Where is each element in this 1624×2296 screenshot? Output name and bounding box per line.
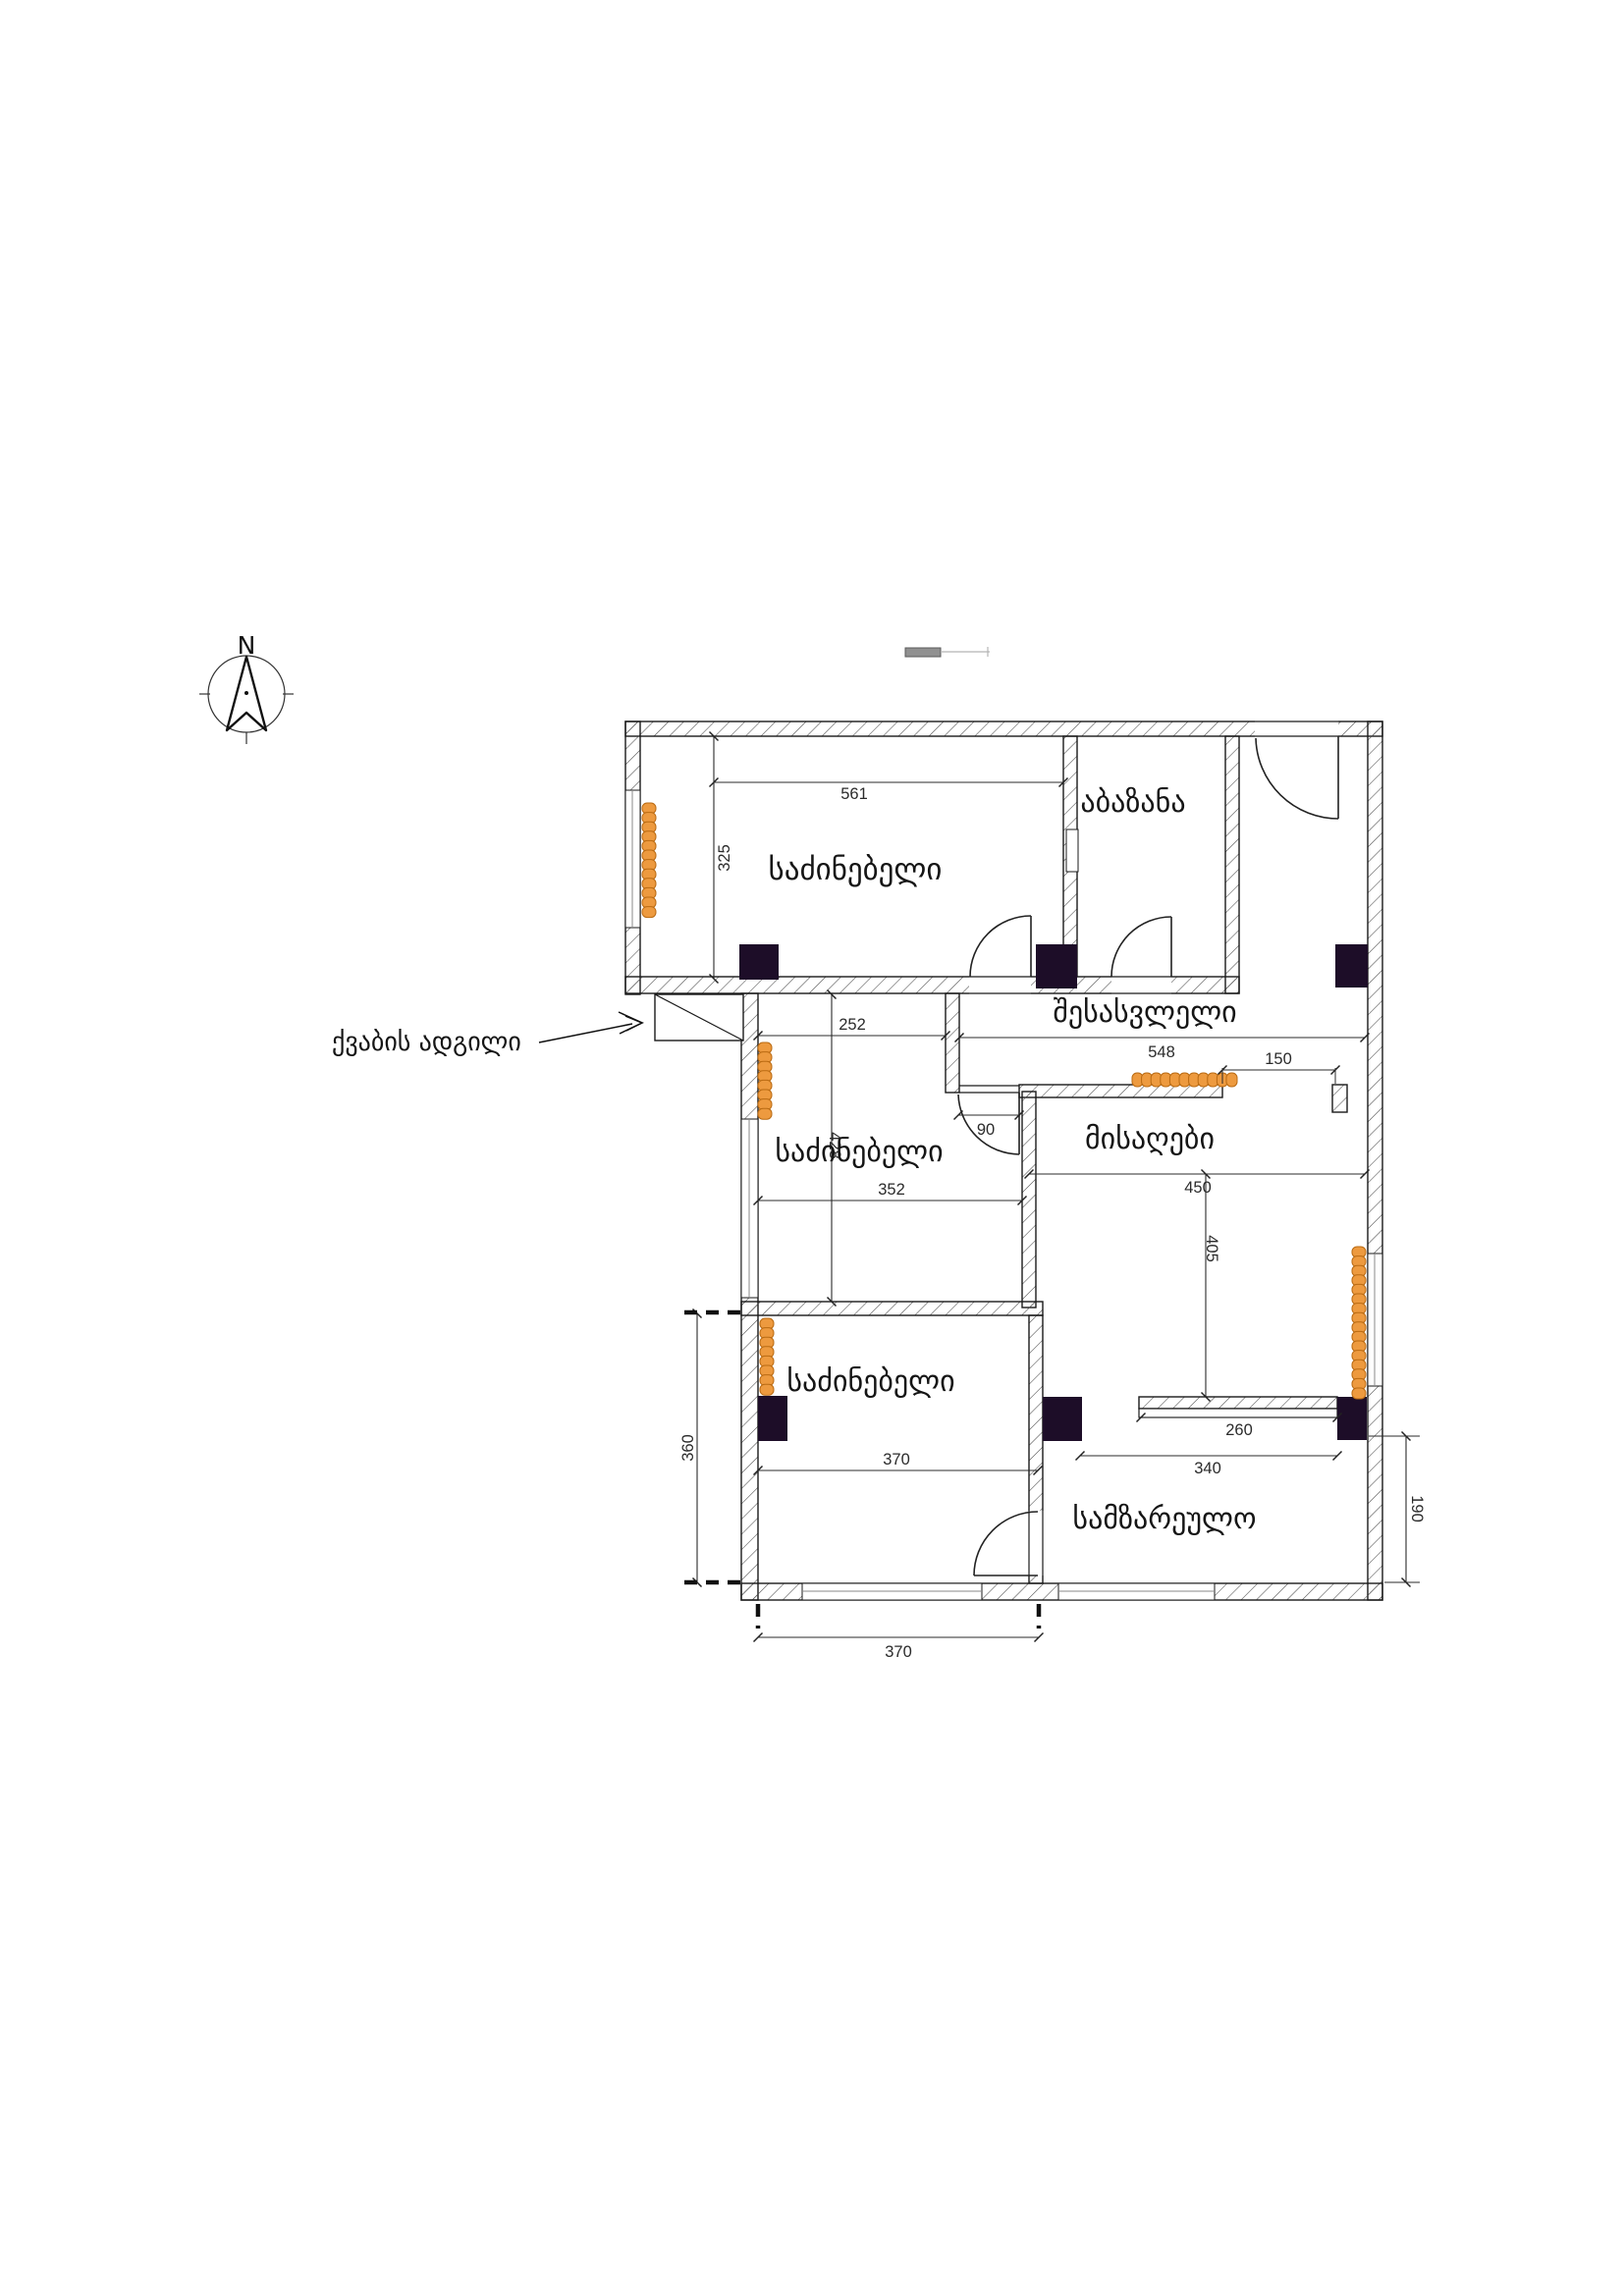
bedroom-top-door-opening [969,976,1031,994]
column [1043,1397,1082,1441]
dim-360: 360 [679,1434,697,1462]
wall-bathroom-right [1225,736,1239,993]
arrow-head-icon [619,1012,642,1034]
window-living-right [1368,1254,1382,1386]
entry-door-opening [1255,721,1338,737]
wall-hall-partition [946,993,959,1093]
dim-561: 561 [840,785,868,803]
dim-340: 340 [1194,1460,1221,1477]
north-label: N [238,631,256,660]
boiler-niche [655,994,743,1041]
room-label-living: მისაღები [1085,1122,1215,1156]
floor-plan-drawing: N [0,0,1624,2296]
room-label-bathroom: აბაზანა [1080,785,1185,820]
column [1337,1397,1367,1440]
radiator-icon [760,1318,774,1395]
radiator-icon [642,803,656,918]
arrow-head-icon [625,1016,642,1031]
dim-325: 325 [716,844,733,872]
wall-bedroom-bottom-top [741,1302,1043,1315]
room-label-bedroom-bottom: საძინებელი [786,1364,954,1399]
vent-bathroom [1066,829,1078,872]
leader-line [539,1024,632,1042]
dim-352: 352 [878,1181,905,1199]
window-bedroom-bottom [802,1583,982,1600]
windows [625,790,1382,1600]
column [739,944,779,980]
north-compass-icon: N [199,631,294,744]
column [1036,944,1077,988]
bathroom-door [1111,917,1171,977]
radiator-icon [1132,1073,1237,1087]
radiator-icon [1352,1247,1366,1399]
floor-plan-page: N [0,0,1624,2296]
column [758,1396,787,1441]
room-label-hall: შესასვლელი [1053,995,1236,1030]
room-label-bedroom-middle: საძინებელი [775,1135,943,1169]
scale-bar [905,647,990,657]
entry-door [1256,736,1338,819]
room-labels: საძინებელი აბაზანა შესასვლელი საძინებელი… [769,785,1257,1536]
walls [625,721,1382,1600]
column [1335,944,1368,988]
bathroom-door-opening [1111,976,1171,994]
wall-partial-260 [1139,1397,1337,1409]
dim-190: 190 [1408,1495,1426,1522]
bedroom-top-door [970,916,1031,977]
dimension-texts: 561 325 252 548 150 90 352 428 450 405 2… [679,785,1426,1661]
window-bedroom-top-left [625,790,640,928]
dim-370-room: 370 [883,1451,910,1468]
middle-door-opening [959,1086,1019,1093]
room-label-kitchen: სამზარეულო [1072,1502,1256,1536]
bedroom-bottom-door-opening [1027,1511,1045,1575]
window-kitchen-bottom [1058,1583,1215,1600]
boiler-area-label: ქვაბის ადგილი [332,1028,521,1057]
dim-252: 252 [839,1016,866,1034]
wall-partial-260-ledge [1139,1409,1337,1417]
dim-260: 260 [1225,1421,1253,1439]
dim-90: 90 [977,1121,995,1139]
radiator-icon [758,1042,772,1119]
dim-450: 450 [1184,1179,1212,1197]
wall-stub-150 [1332,1085,1347,1112]
wall-living-mid-partition [1022,1092,1036,1308]
boiler-annotation: ქვაბის ადგილი [332,1012,642,1057]
room-label-bedroom-top: საძინებელი [769,852,943,887]
dim-370-bottom: 370 [885,1643,912,1661]
window-bedroom-middle-left [741,1119,758,1298]
wall-right-outer [1368,721,1382,1600]
dim-548: 548 [1148,1043,1175,1061]
dim-150: 150 [1265,1050,1292,1068]
dim-405: 405 [1203,1235,1220,1262]
